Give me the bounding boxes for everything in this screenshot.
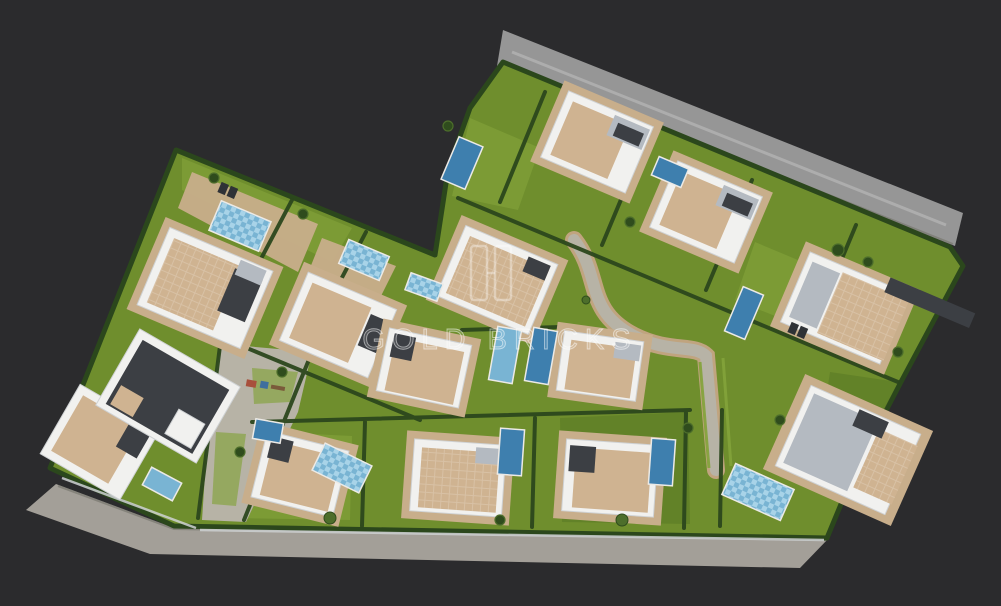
- tree: [277, 367, 287, 377]
- palm-tree: [616, 514, 628, 526]
- tree: [298, 209, 308, 219]
- villa-bottom-2: [401, 430, 515, 525]
- tree: [625, 217, 635, 227]
- pool: [497, 428, 524, 476]
- aerial-render: GOLD BRICKS: [0, 0, 1001, 606]
- pool: [648, 438, 675, 486]
- play-equipment: [260, 381, 269, 389]
- palm-tree: [324, 512, 336, 524]
- tree: [893, 347, 903, 357]
- watermark-text: GOLD BRICKS: [362, 324, 637, 356]
- render-canvas: GOLD BRICKS: [0, 0, 1001, 606]
- tree: [495, 515, 505, 525]
- tree: [443, 121, 453, 131]
- tree: [832, 244, 844, 256]
- tree: [775, 415, 785, 425]
- tree: [209, 173, 219, 183]
- villa-roof-dark: [568, 445, 596, 473]
- pool: [252, 419, 283, 444]
- tree: [235, 447, 245, 457]
- tree: [863, 257, 873, 267]
- tree: [683, 423, 693, 433]
- palm-tree: [582, 296, 590, 304]
